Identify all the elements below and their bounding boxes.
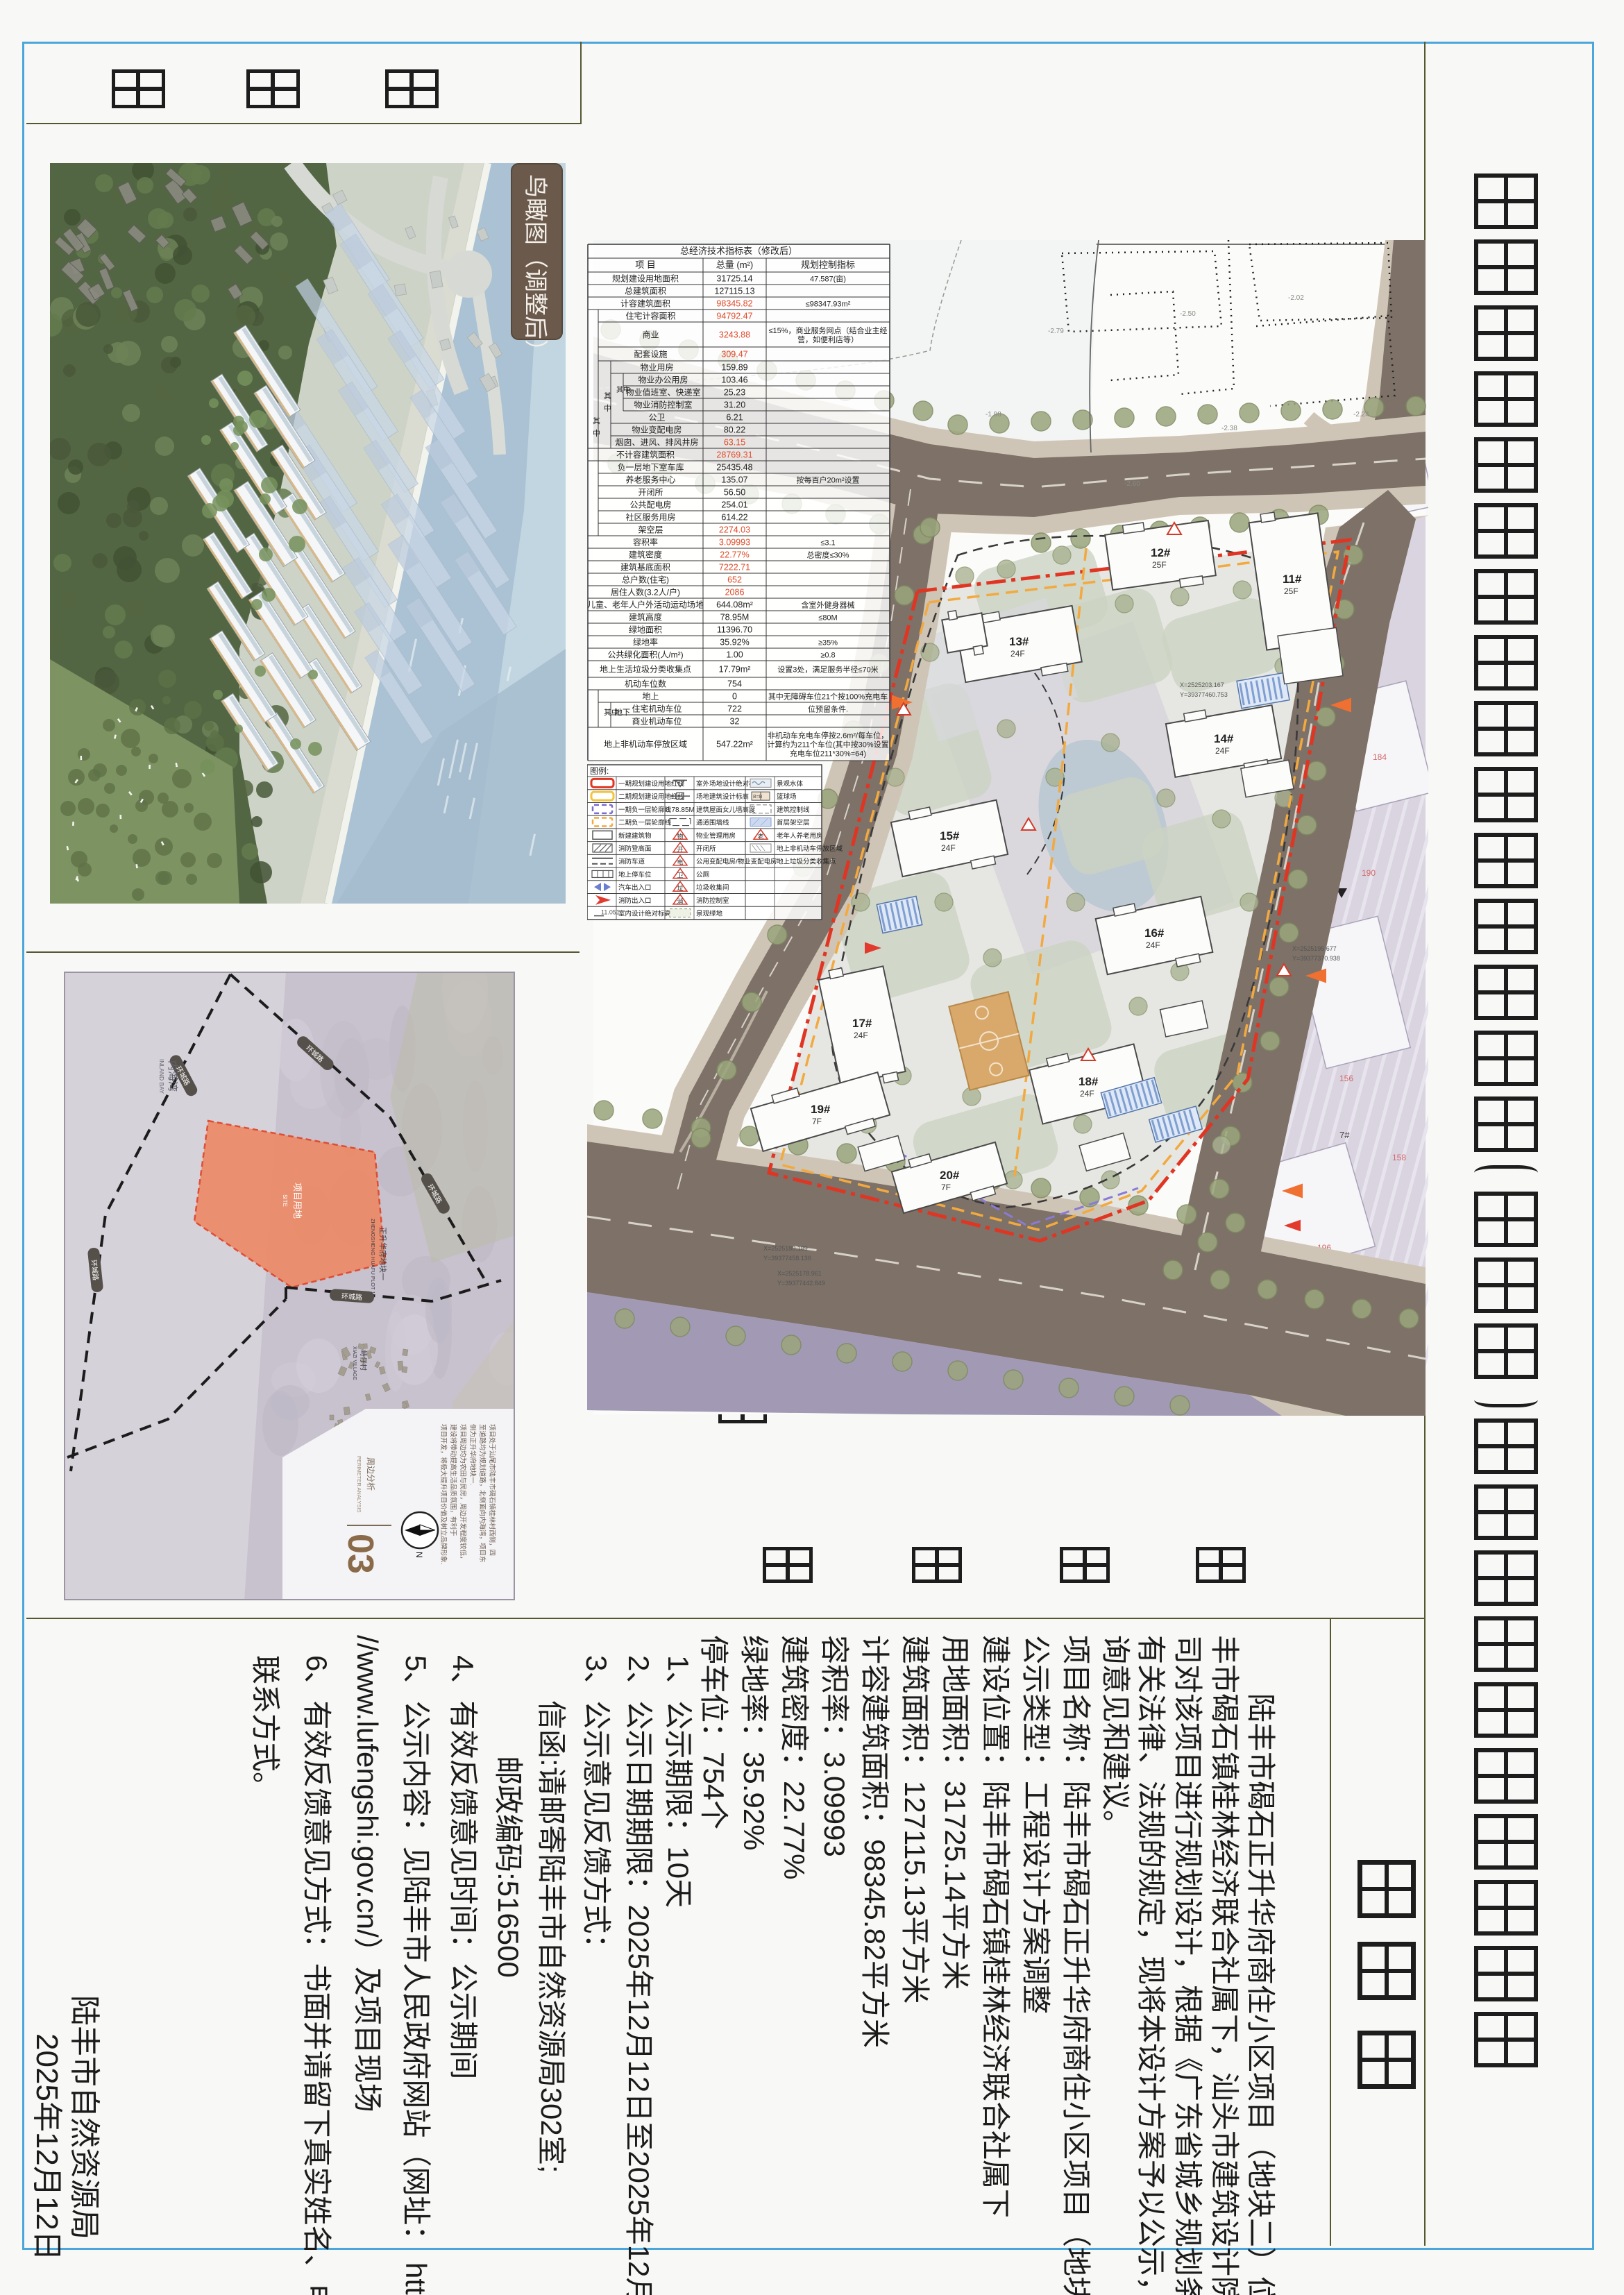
svg-text:24F: 24F xyxy=(1080,1089,1094,1099)
svg-text:Y=39377442.849: Y=39377442.849 xyxy=(777,1280,825,1287)
svg-text:建筑控制线: 建筑控制线 xyxy=(777,806,810,814)
svg-text:11#: 11# xyxy=(1283,573,1302,586)
svg-text:二期负一层轮廓线: 二期负一层轮廓线 xyxy=(618,819,672,827)
svg-text:景观绿地: 景观绿地 xyxy=(696,910,723,918)
svg-text:汽车出入口: 汽车出入口 xyxy=(618,883,652,892)
svg-text:722: 722 xyxy=(727,704,742,714)
svg-text:项 目: 项 目 xyxy=(635,260,656,270)
svg-text:物业办公用房: 物业办公用房 xyxy=(638,375,688,385)
svg-text:公用变配电房/物业变配电房: 公用变配电房/物业变配电房 xyxy=(696,858,777,866)
svg-text:24F: 24F xyxy=(1010,649,1025,659)
svg-text:25F: 25F xyxy=(1284,586,1299,596)
svg-text:物业用房: 物业用房 xyxy=(640,362,673,373)
svg-text:计容建筑面积: 计容建筑面积 xyxy=(620,298,670,309)
svg-text:547.22m²: 547.22m² xyxy=(716,740,753,750)
svg-text:PERIMETER ANALYSIS: PERIMETER ANALYSIS xyxy=(356,1456,362,1513)
svg-text:物业管理用房: 物业管理用房 xyxy=(696,831,736,840)
svg-text:地上非机动车停放区域: 地上非机动车停放区域 xyxy=(777,845,843,853)
svg-text:135.07: 135.07 xyxy=(721,475,747,485)
svg-text:754: 754 xyxy=(727,679,742,689)
svg-text:计算约为211个车位(其中按30%设置: 计算约为211个车位(其中按30%设置 xyxy=(767,740,888,750)
svg-text:2274.03: 2274.03 xyxy=(719,525,750,535)
svg-text:其: 其 xyxy=(604,391,611,400)
svg-text:项目开发，将极大提升项目价值及树立品牌形象.: 项目开发，将极大提升项目价值及树立品牌形象. xyxy=(439,1424,448,1564)
svg-text:3.09993: 3.09993 xyxy=(719,538,750,548)
svg-text:56.50: 56.50 xyxy=(724,488,745,498)
svg-text:11396.70: 11396.70 xyxy=(717,625,752,635)
svg-text:-2.24: -2.24 xyxy=(1353,411,1369,418)
svg-text:按每百户20m²设置: 按每百户20m²设置 xyxy=(796,475,859,485)
svg-text:614.22: 614.22 xyxy=(721,513,747,523)
svg-text:养老服务中心: 养老服务中心 xyxy=(625,475,675,485)
svg-text:16#: 16# xyxy=(1144,926,1165,940)
svg-text:12#: 12# xyxy=(1151,546,1171,559)
svg-text:一期负一层轮廓线: 一期负一层轮廓线 xyxy=(618,806,672,814)
svg-text:侧为正升华府地块一.: 侧为正升华府地块一. xyxy=(468,1424,477,1485)
svg-text:机动车位数: 机动车位数 xyxy=(625,679,666,689)
svg-text:7222.71: 7222.71 xyxy=(719,563,750,573)
svg-text:总经济技术指标表（修改后）: 总经济技术指标表（修改后） xyxy=(680,246,797,256)
svg-text:X=2525180.189: X=2525180.189 xyxy=(763,1245,808,1252)
svg-text:项目用地: 项目用地 xyxy=(292,1183,303,1219)
svg-text:周边分析: 周边分析 xyxy=(366,1457,375,1491)
svg-text:位预留条件.: 位预留条件. xyxy=(808,704,848,714)
svg-text:其中: 其中 xyxy=(616,385,630,394)
svg-text:其中无障碍车位21个按100%充电车: 其中无障碍车位21个按100%充电车 xyxy=(768,692,888,702)
svg-text:儿童、老年人户外活动运动场地: 儿童、老年人户外活动运动场地 xyxy=(587,600,704,610)
svg-text:垃: 垃 xyxy=(677,884,683,892)
svg-text:内海湾: 内海湾 xyxy=(167,1060,178,1092)
svg-text:B=B: B=B xyxy=(753,795,763,799)
svg-text:公共绿化面积(人/m²): 公共绿化面积(人/m²) xyxy=(607,650,683,660)
svg-text:鸟瞰图（调整后）: 鸟瞰图（调整后） xyxy=(522,174,548,363)
svg-text:03: 03 xyxy=(340,1534,380,1574)
svg-text:充电车位211*30%=64): 充电车位211*30%=64) xyxy=(790,749,866,759)
svg-text:≥0.8: ≥0.8 xyxy=(820,652,835,660)
svg-text:32: 32 xyxy=(730,717,740,727)
svg-text:127115.13: 127115.13 xyxy=(714,287,754,296)
svg-text:消防控制室: 消防控制室 xyxy=(696,897,729,905)
svg-text:184: 184 xyxy=(1373,752,1387,762)
svg-text:正升华府地块一: 正升华府地块一 xyxy=(378,1227,388,1280)
svg-text:通道围墙线: 通道围墙线 xyxy=(696,819,729,827)
svg-text:24F: 24F xyxy=(854,1031,868,1040)
svg-text:19#: 19# xyxy=(811,1103,831,1116)
svg-text:80.22: 80.22 xyxy=(724,425,745,435)
svg-text:ZHENGSHENG HUAFU PLOT 1: ZHENGSHENG HUAFU PLOT 1 xyxy=(370,1219,376,1294)
svg-text:营，如便利店等）: 营，如便利店等） xyxy=(797,334,858,344)
svg-text:INLAND BAY: INLAND BAY xyxy=(158,1059,165,1094)
svg-text:X=2525178.961: X=2525178.961 xyxy=(777,1270,822,1277)
svg-text:158: 158 xyxy=(1392,1153,1406,1162)
svg-text:652: 652 xyxy=(727,575,742,585)
svg-text:老年人养老用房: 老年人养老用房 xyxy=(777,831,823,840)
svg-text:≤3.1: ≤3.1 xyxy=(820,539,835,548)
svg-text:篮球场: 篮球场 xyxy=(777,793,797,801)
svg-text:11.051: 11.051 xyxy=(601,909,620,916)
svg-text:地上: 地上 xyxy=(642,692,659,702)
svg-text:地上非机动车停放区域: 地上非机动车停放区域 xyxy=(604,739,687,750)
svg-text:31.20: 31.20 xyxy=(724,400,745,410)
svg-text:架空层: 架空层 xyxy=(638,525,663,535)
svg-text:24F: 24F xyxy=(1215,746,1230,756)
svg-text:18#: 18# xyxy=(1079,1075,1099,1088)
svg-text:项目处于汕尾市陆丰市碣石镇桂林村西侧，四: 项目处于汕尾市陆丰市碣石镇桂林村西侧，四 xyxy=(488,1424,496,1556)
svg-text:配套设施: 配套设施 xyxy=(634,350,667,359)
svg-text:非机动车充电车停按2.6m²/每车位，: 非机动车充电车停按2.6m²/每车位， xyxy=(768,731,888,740)
svg-text:新建建筑物: 新建建筑物 xyxy=(618,831,652,840)
svg-text:644.08m²: 644.08m² xyxy=(716,600,753,610)
svg-text:0: 0 xyxy=(732,692,737,702)
svg-text:建筑密度: 建筑密度 xyxy=(629,550,662,560)
svg-text:垃圾收集间: 垃圾收集间 xyxy=(696,883,729,892)
svg-text:Y=39377370.938: Y=39377370.938 xyxy=(1292,955,1340,962)
svg-text:一期规划建设用地红线: 一期规划建设用地红线 xyxy=(618,779,685,788)
svg-text:20#: 20# xyxy=(940,1169,960,1182)
svg-text:Y=39377458.136: Y=39377458.136 xyxy=(763,1255,811,1262)
svg-text:物业值班室、快递室: 物业值班室、快递室 xyxy=(625,387,700,398)
svg-text:规划建设用地面积: 规划建设用地面积 xyxy=(612,273,679,284)
svg-text:17.79m²: 17.79m² xyxy=(719,665,751,675)
svg-text:地上停车位: 地上停车位 xyxy=(618,870,652,879)
svg-text:-2.02: -2.02 xyxy=(1288,294,1304,302)
svg-text:1.00: 1.00 xyxy=(726,650,743,660)
svg-text:309.47: 309.47 xyxy=(721,350,747,359)
svg-text:-2.79: -2.79 xyxy=(1048,328,1064,335)
svg-text:X=2525203.167: X=2525203.167 xyxy=(1180,681,1224,688)
svg-text:-2.38: -2.38 xyxy=(1221,425,1237,432)
svg-text:25.23: 25.23 xyxy=(724,388,745,398)
svg-text:公共配电房: 公共配电房 xyxy=(629,500,671,510)
svg-text:XIAZI VILLAGE: XIAZI VILLAGE xyxy=(352,1346,357,1380)
svg-text:老: 老 xyxy=(757,832,763,840)
svg-text:3243.88: 3243.88 xyxy=(719,330,750,340)
svg-text:24F: 24F xyxy=(941,843,956,853)
svg-text:94792.47: 94792.47 xyxy=(716,312,752,321)
svg-text:28769.31: 28769.31 xyxy=(716,450,752,460)
svg-text:地下: 地下 xyxy=(615,708,630,717)
svg-text:190: 190 xyxy=(1362,868,1376,878)
svg-text:中: 中 xyxy=(593,429,600,438)
svg-text:N: N xyxy=(414,1552,424,1558)
svg-text:景观水体: 景观水体 xyxy=(777,779,804,788)
svg-text:14#: 14# xyxy=(1214,732,1234,745)
svg-text:建筑基底面积: 建筑基底面积 xyxy=(620,562,670,573)
svg-text:6.21: 6.21 xyxy=(726,413,743,423)
svg-text:22.77%: 22.77% xyxy=(720,550,749,560)
svg-text:社区服务用房: 社区服务用房 xyxy=(625,512,675,523)
svg-text:Y=39377460.753: Y=39377460.753 xyxy=(1180,691,1228,698)
svg-text:规划控制指标: 规划控制指标 xyxy=(801,260,855,270)
svg-text:31725.14: 31725.14 xyxy=(716,274,752,284)
svg-text:商业机动车位: 商业机动车位 xyxy=(632,716,682,727)
svg-text:17#: 17# xyxy=(852,1017,872,1030)
svg-text:物业消防控制室: 物业消防控制室 xyxy=(634,400,692,410)
svg-text:物: 物 xyxy=(677,832,683,840)
svg-text:电: 电 xyxy=(677,858,683,866)
svg-text:建筑高度: 建筑高度 xyxy=(629,612,662,623)
svg-text:开: 开 xyxy=(677,846,683,853)
svg-text:156: 156 xyxy=(1339,1074,1353,1083)
svg-text:地上垃圾分类收集点: 地上垃圾分类收集点 xyxy=(777,858,836,866)
svg-text:78.95M: 78.95M xyxy=(720,613,750,623)
svg-text:≤15%，商业服务网点（结合业主经: ≤15%，商业服务网点（结合业主经 xyxy=(768,325,887,335)
svg-text:47.587(亩): 47.587(亩) xyxy=(810,274,846,284)
svg-text:总密度≤30%: 总密度≤30% xyxy=(806,550,849,560)
svg-text:至道路均为规划道路，北侧面向内海湾，项目东: 至道路均为规划道路，北侧面向内海湾，项目东 xyxy=(478,1424,487,1563)
svg-text:建设将带动提高生活品质氛围，有利于: 建设将带动提高生活品质氛围，有利于 xyxy=(449,1424,457,1536)
svg-text:开闭所: 开闭所 xyxy=(696,845,716,853)
svg-text:SITE: SITE xyxy=(282,1194,288,1207)
svg-text:商业: 商业 xyxy=(642,330,659,340)
svg-text:不计容建筑面积: 不计容建筑面积 xyxy=(616,450,675,460)
svg-text:地上生活垃圾分类收集点: 地上生活垃圾分类收集点 xyxy=(600,664,691,675)
svg-text:公厕: 公厕 xyxy=(696,871,709,879)
svg-text:消: 消 xyxy=(677,897,683,905)
svg-text:-1.98: -1.98 xyxy=(986,411,1001,418)
svg-text:≥35%: ≥35% xyxy=(818,639,838,647)
svg-text:项目周边均为农田与民房，周边开发程度较低，: 项目周边均为农田与民房，周边开发程度较低， xyxy=(459,1424,467,1563)
svg-text:98345.82: 98345.82 xyxy=(716,299,752,309)
svg-text:25F: 25F xyxy=(1152,560,1167,570)
svg-text:13#: 13# xyxy=(1009,635,1029,648)
svg-text:总建筑面积: 总建筑面积 xyxy=(625,286,666,296)
svg-text:容积率: 容积率 xyxy=(633,537,658,548)
svg-text:总户数(住宅): 总户数(住宅) xyxy=(622,575,669,585)
svg-text:消防出入口: 消防出入口 xyxy=(618,897,652,905)
svg-text:烟囱、进风、排风井房: 烟囱、进风、排风井房 xyxy=(615,437,698,448)
svg-text:绿地率: 绿地率 xyxy=(633,637,658,647)
svg-text:消防车道: 消防车道 xyxy=(618,858,645,866)
svg-text:场地建筑设计标高: 场地建筑设计标高 xyxy=(696,793,749,801)
svg-text:24F: 24F xyxy=(1146,940,1160,950)
svg-text:二期规划建设用地红线: 二期规划建设用地红线 xyxy=(618,793,685,801)
svg-text:2086: 2086 xyxy=(725,588,745,598)
svg-text:159.89: 159.89 xyxy=(721,363,747,373)
svg-text:-2.50: -2.50 xyxy=(1180,310,1196,318)
svg-text:63.15: 63.15 xyxy=(724,438,745,448)
svg-text:≤80M: ≤80M xyxy=(818,614,837,623)
svg-text:35.92%: 35.92% xyxy=(720,638,749,647)
svg-text:首层架空层: 首层架空层 xyxy=(777,819,810,827)
svg-text:设置3处，满足服务半径≤70米: 设置3处，满足服务半径≤70米 xyxy=(777,665,878,675)
svg-text:开闭所: 开闭所 xyxy=(638,488,663,498)
svg-text:≤98347.93m²: ≤98347.93m² xyxy=(806,300,851,309)
svg-text:室内设计绝对标高: 室内设计绝对标高 xyxy=(618,910,671,918)
svg-text:15#: 15# xyxy=(940,829,960,842)
svg-text:图例:: 图例: xyxy=(590,766,609,776)
svg-text:建筑屋面女儿墙高度: 建筑屋面女儿墙高度 xyxy=(696,806,756,814)
svg-text:X=2525195.677: X=2525195.677 xyxy=(1292,945,1337,952)
svg-text:0:78.85M: 0:78.85M xyxy=(666,806,695,814)
svg-text:103.46: 103.46 xyxy=(721,375,747,385)
svg-text:卫: 卫 xyxy=(677,872,683,879)
svg-text:中: 中 xyxy=(604,404,611,413)
svg-text:住宅计容面积: 住宅计容面积 xyxy=(625,311,675,321)
svg-text:7#: 7# xyxy=(1339,1130,1350,1140)
svg-text:含室外健身器械: 含室外健身器械 xyxy=(802,600,855,610)
svg-text:7F: 7F xyxy=(941,1183,951,1192)
svg-text:公卫: 公卫 xyxy=(648,413,665,423)
svg-text:其: 其 xyxy=(593,416,600,425)
svg-text:消防登高面: 消防登高面 xyxy=(618,845,652,853)
svg-text:物业变配电房: 物业变配电房 xyxy=(632,425,682,435)
svg-text:254.01: 254.01 xyxy=(721,500,747,510)
svg-text:绿地面积: 绿地面积 xyxy=(629,625,662,635)
svg-text:居住人数(3.2人/户): 居住人数(3.2人/户) xyxy=(611,587,680,598)
svg-text:住宅机动车位: 住宅机动车位 xyxy=(632,704,682,714)
svg-text:负一层地下室车库: 负一层地下室车库 xyxy=(617,462,684,473)
svg-text:25435.48: 25435.48 xyxy=(716,463,752,473)
svg-text:7F: 7F xyxy=(812,1117,822,1126)
svg-text:-2.60: -2.60 xyxy=(1124,480,1140,488)
svg-text:总量 (m²): 总量 (m²) xyxy=(716,260,753,270)
